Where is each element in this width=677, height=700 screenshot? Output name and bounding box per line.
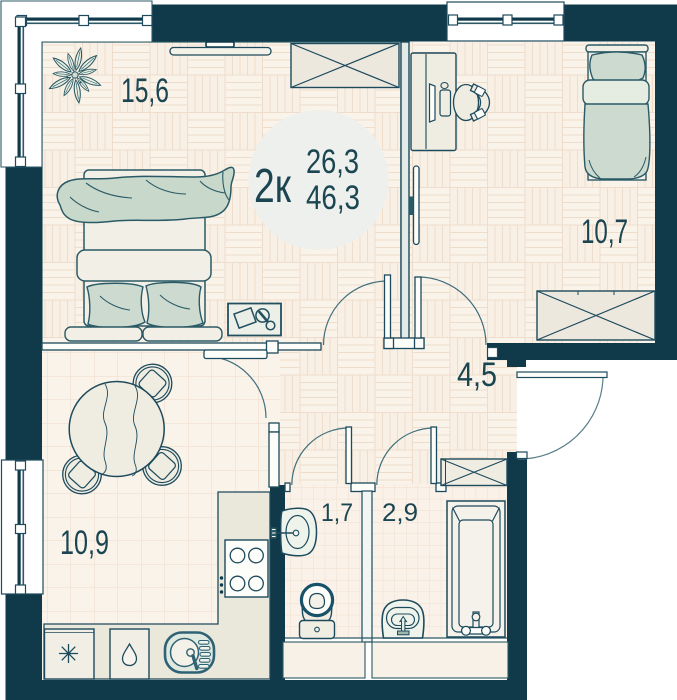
svg-text:26,3: 26,3 bbox=[306, 143, 359, 181]
svg-text:10,9: 10,9 bbox=[60, 524, 109, 562]
svg-text:15,6: 15,6 bbox=[121, 72, 169, 110]
svg-text:2к: 2к bbox=[254, 160, 292, 213]
svg-text:46,3: 46,3 bbox=[306, 179, 360, 217]
svg-text:1,7: 1,7 bbox=[321, 499, 353, 527]
svg-text:2,9: 2,9 bbox=[382, 499, 418, 527]
svg-text:10,7: 10,7 bbox=[581, 213, 628, 251]
svg-text:4,5: 4,5 bbox=[457, 356, 497, 394]
